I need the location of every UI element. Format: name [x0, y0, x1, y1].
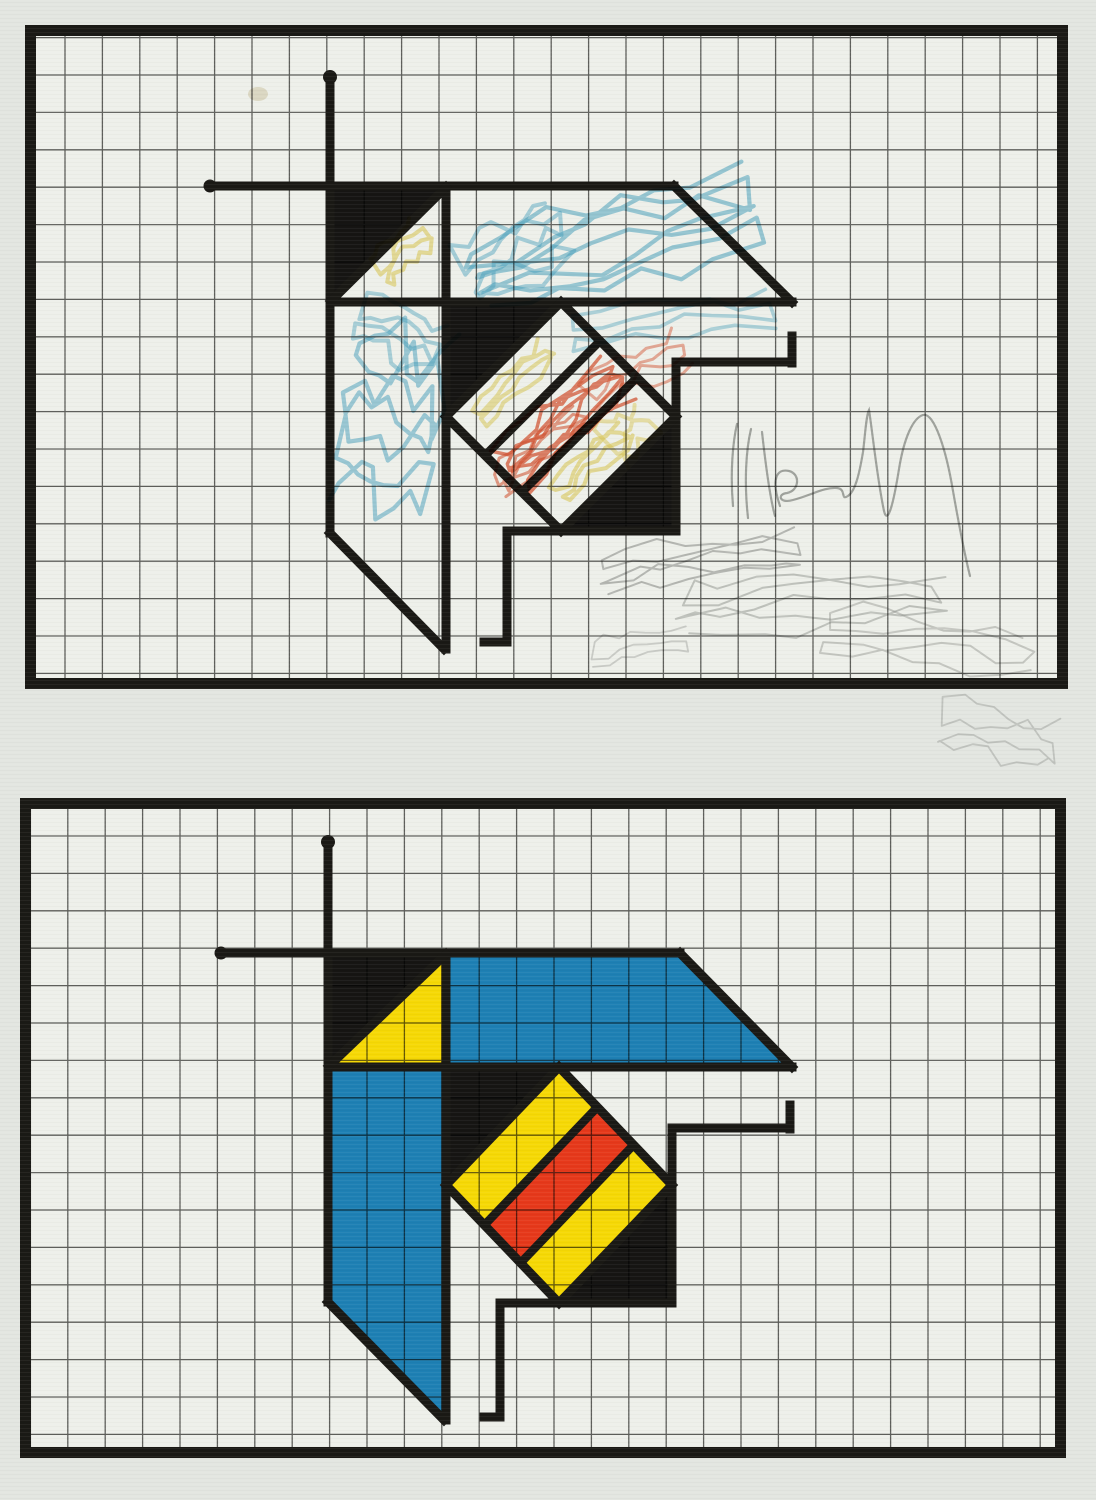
graph-paper-artwork: [0, 0, 1096, 1500]
canvas-texture: [0, 0, 1096, 1500]
artwork-canvas: [0, 0, 1096, 1500]
